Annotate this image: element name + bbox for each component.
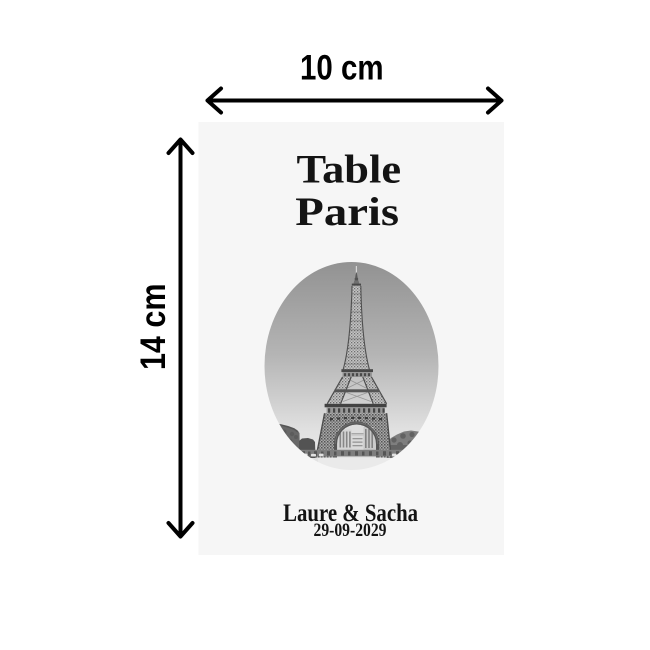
svg-text:14 cm: 14 cm bbox=[134, 284, 173, 371]
svg-text:Paris: Paris bbox=[295, 189, 399, 234]
svg-text:Table: Table bbox=[297, 147, 402, 192]
svg-text:10 cm: 10 cm bbox=[300, 48, 384, 87]
svg-text:29-09-2029: 29-09-2029 bbox=[314, 520, 387, 541]
